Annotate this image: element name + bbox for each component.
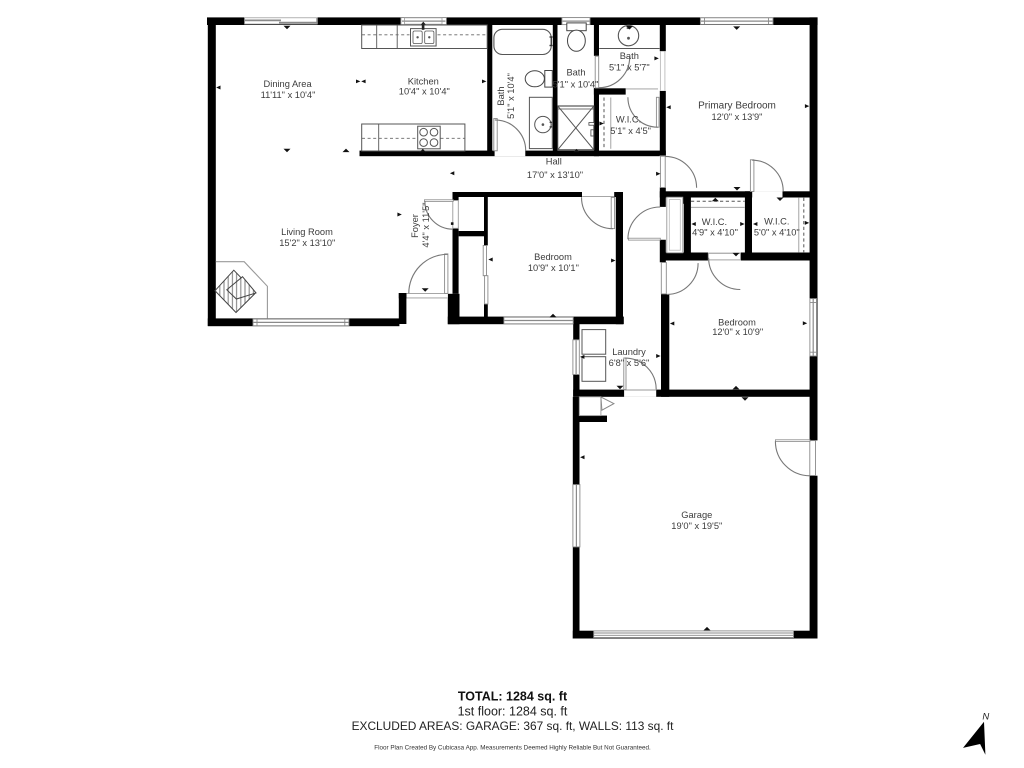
svg-text:Floor Plan Created By Cubicasa: Floor Plan Created By Cubicasa App. Meas… <box>374 744 651 751</box>
svg-text:11'11" x 10'4": 11'11" x 10'4" <box>261 90 316 100</box>
svg-text:Living Room: Living Room <box>281 227 333 237</box>
svg-text:10'4" x 10'4": 10'4" x 10'4" <box>399 87 450 97</box>
svg-text:EXCLUDED AREAS: GARAGE: 367 sq: EXCLUDED AREAS: GARAGE: 367 sq. ft, WALL… <box>352 719 675 733</box>
svg-text:Bedroom: Bedroom <box>718 318 756 328</box>
svg-text:Bath: Bath <box>566 68 585 78</box>
svg-text:15'2" x 13'10": 15'2" x 13'10" <box>279 238 335 248</box>
svg-text:5'1" x 4'5": 5'1" x 4'5" <box>610 126 651 136</box>
svg-text:W.I.C.: W.I.C. <box>764 217 789 227</box>
svg-text:Dining Area: Dining Area <box>264 79 313 89</box>
svg-text:Primary Bedroom: Primary Bedroom <box>698 100 776 111</box>
svg-text:4'4" x 11'5": 4'4" x 11'5" <box>421 202 431 247</box>
svg-text:12'0" x 10'9": 12'0" x 10'9" <box>712 327 763 337</box>
svg-text:Laundry: Laundry <box>612 347 646 357</box>
svg-text:5'0" x 4'10": 5'0" x 4'10" <box>754 228 800 238</box>
svg-text:12'0" x 13'9": 12'0" x 13'9" <box>712 112 763 122</box>
svg-text:6'8" x 5'6": 6'8" x 5'6" <box>609 358 650 368</box>
svg-text:10'9" x 10'1": 10'9" x 10'1" <box>528 263 579 273</box>
svg-text:TOTAL: 1284 sq. ft: TOTAL: 1284 sq. ft <box>458 689 568 703</box>
svg-text:5'1" x 10'4": 5'1" x 10'4" <box>506 73 516 119</box>
svg-text:W.I.C.: W.I.C. <box>702 217 727 227</box>
svg-text:17'0" x 13'10": 17'0" x 13'10" <box>527 170 583 180</box>
svg-text:Bedroom: Bedroom <box>534 252 572 262</box>
svg-text:Foyer: Foyer <box>410 214 420 238</box>
svg-text:Garage: Garage <box>681 510 712 520</box>
svg-text:5'1" x 5'7": 5'1" x 5'7" <box>609 63 650 73</box>
svg-text:5'1" x 10'4": 5'1" x 10'4" <box>553 80 599 90</box>
svg-text:19'0" x 19'5": 19'0" x 19'5" <box>671 521 722 531</box>
svg-text:W.I.C.: W.I.C. <box>616 115 641 125</box>
svg-text:N: N <box>982 712 989 723</box>
svg-text:Kitchen: Kitchen <box>408 76 439 86</box>
svg-text:4'9" x 4'10": 4'9" x 4'10" <box>692 228 738 238</box>
svg-text:Bath: Bath <box>620 51 639 61</box>
svg-text:Hall: Hall <box>546 157 562 167</box>
svg-text:1st floor: 1284 sq. ft: 1st floor: 1284 sq. ft <box>458 705 568 719</box>
svg-text:Bath: Bath <box>496 86 506 105</box>
